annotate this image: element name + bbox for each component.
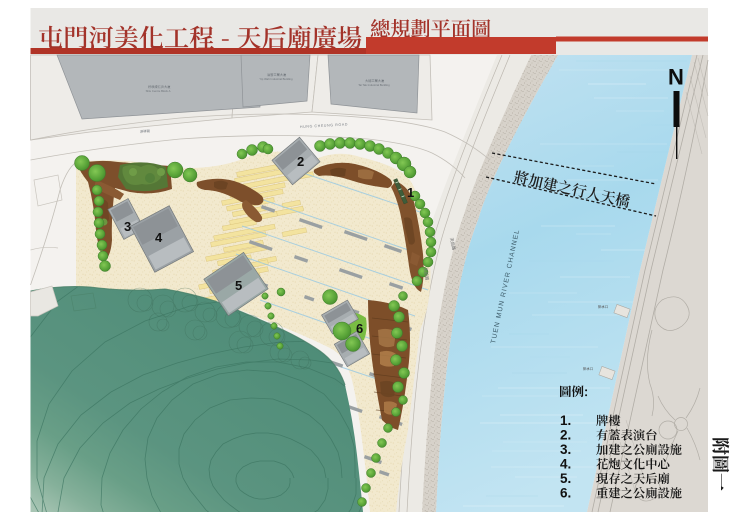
svg-text:Tai Tak Industrial Building: Tai Tak Industrial Building (358, 83, 390, 87)
svg-text:6.: 6. (560, 486, 571, 501)
svg-text:3.: 3. (560, 442, 571, 457)
svg-text:3: 3 (124, 219, 131, 234)
svg-text:5.: 5. (560, 471, 571, 486)
svg-text:2: 2 (297, 154, 304, 169)
svg-text:5: 5 (235, 278, 242, 293)
svg-text:4.: 4. (560, 457, 571, 472)
svg-text:1.: 1. (560, 413, 571, 428)
svg-text:4: 4 (155, 230, 163, 245)
svg-text:Shiu Centre Block A: Shiu Centre Block A (146, 89, 171, 93)
svg-text:1: 1 (407, 185, 414, 200)
svg-text:2.: 2. (560, 428, 571, 443)
svg-text:6: 6 (356, 321, 363, 336)
svg-text:Yip Wah Industrial Building: Yip Wah Industrial Building (259, 77, 293, 81)
svg-text:N: N (668, 65, 684, 90)
